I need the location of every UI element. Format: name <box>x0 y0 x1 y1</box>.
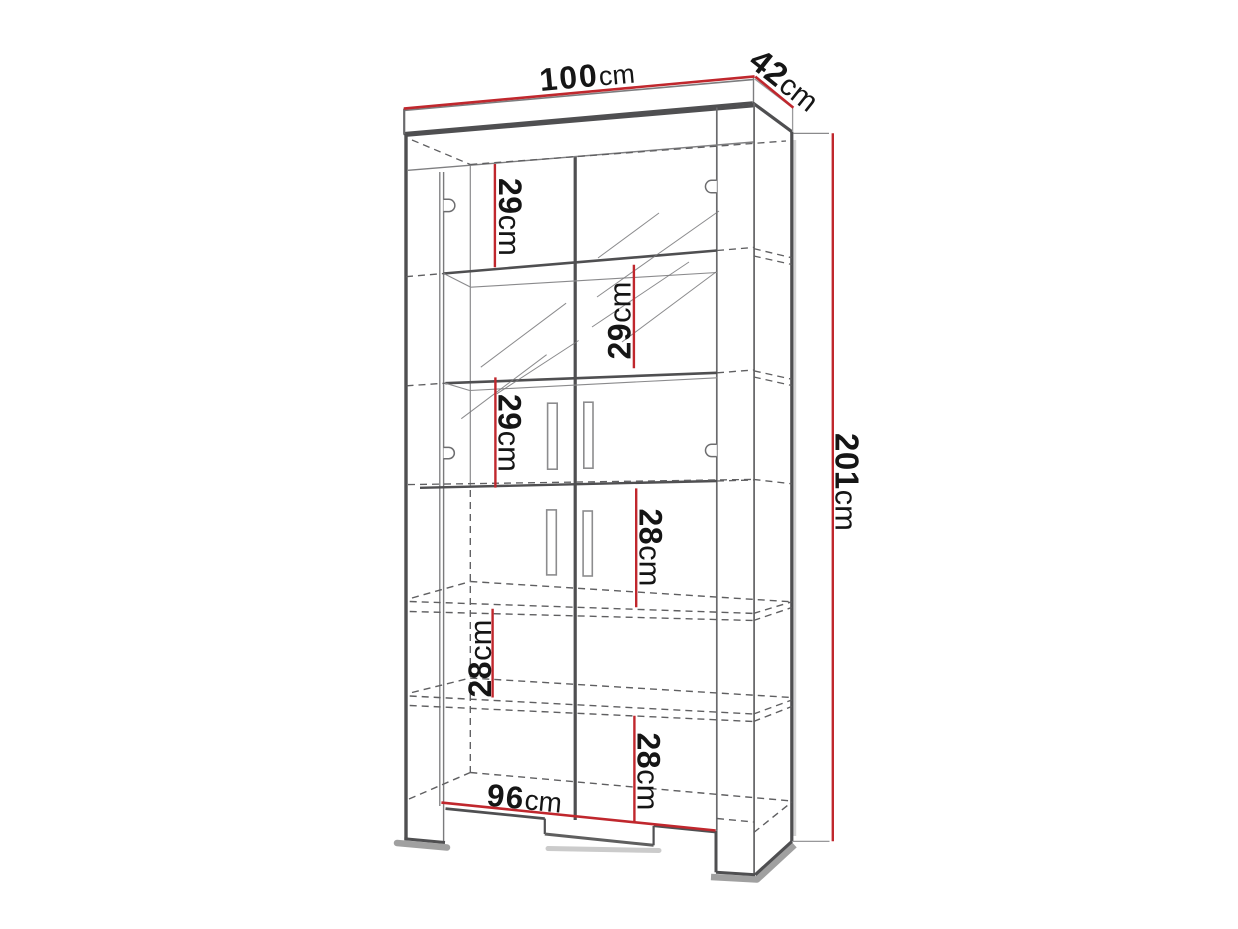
svg-text:29cm: 29cm <box>492 394 528 472</box>
svg-text:28cm: 28cm <box>462 620 498 698</box>
svg-text:29cm: 29cm <box>492 178 528 256</box>
svg-text:28cm: 28cm <box>631 733 667 811</box>
svg-text:28cm: 28cm <box>633 509 669 587</box>
svg-text:29cm: 29cm <box>601 282 637 360</box>
svg-text:201cm: 201cm <box>829 433 866 531</box>
